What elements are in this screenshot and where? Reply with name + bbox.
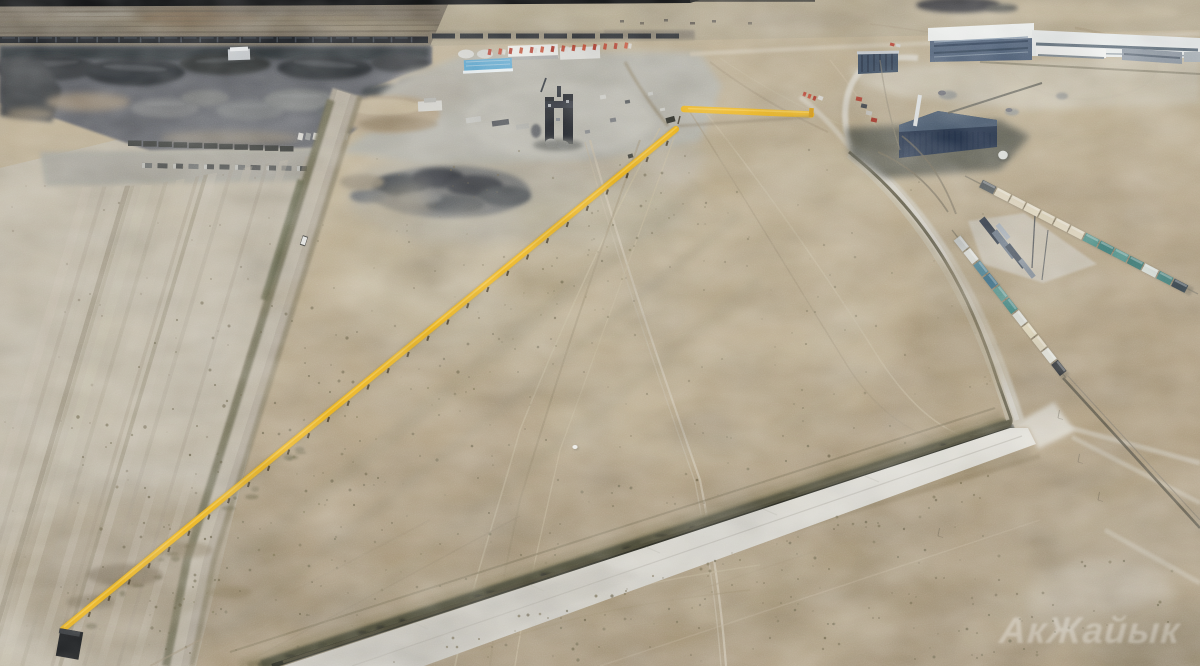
svg-text:АкЖайык: АкЖайык	[997, 609, 1183, 651]
